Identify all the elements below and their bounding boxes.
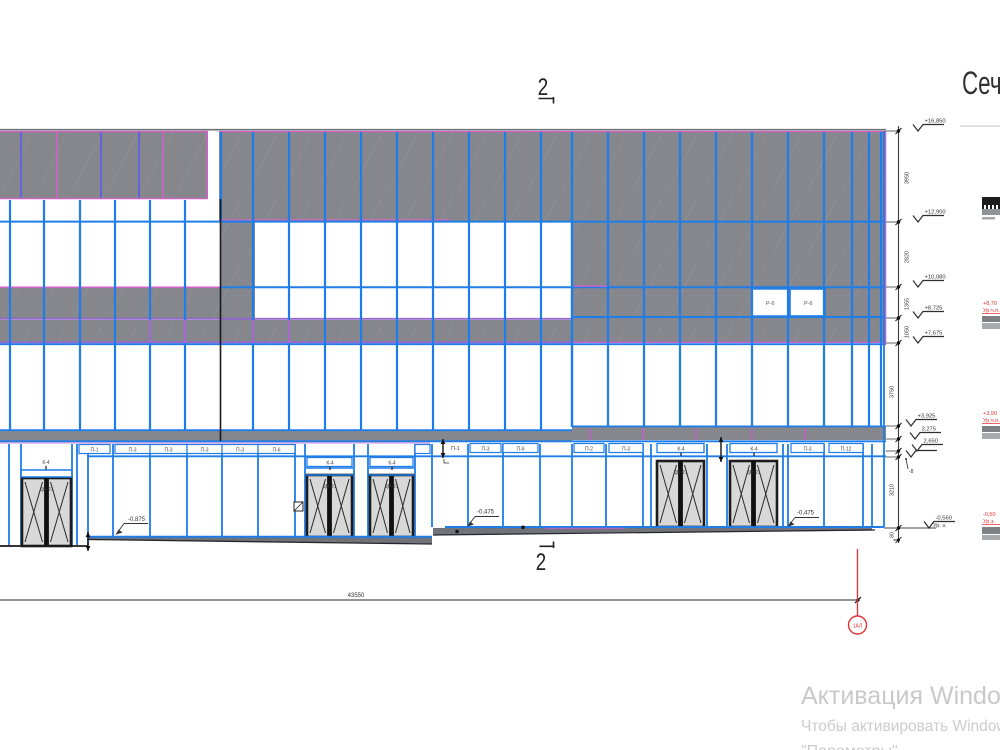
svg-text:ДН-21: ДН-21 (39, 487, 53, 493)
svg-text:П-6: П-6 (516, 447, 524, 453)
svg-text:ДН-21: ДН-21 (322, 484, 336, 490)
svg-text:П-6: П-6 (272, 448, 280, 454)
svg-text:-0,875: -0,875 (128, 517, 146, 523)
svg-text:-8: -8 (909, 469, 914, 475)
svg-text:+8,70: +8,70 (983, 301, 997, 307)
svg-text:Чтобы активировать Windows, пе: Чтобы активировать Windows, перейдите в (801, 718, 1000, 735)
svg-text:3210: 3210 (890, 484, 896, 496)
svg-text:К-4: К-4 (42, 460, 50, 466)
svg-text:+7,675: +7,675 (925, 331, 943, 337)
svg-text:ДН-21: ДН-21 (746, 470, 760, 476)
svg-text:П-1: П-1 (90, 448, 98, 454)
svg-text:"Параметры".: "Параметры". (801, 743, 902, 750)
svg-text:ДН-21: ДН-21 (384, 484, 398, 490)
svg-text:+8,725: +8,725 (925, 306, 943, 312)
svg-text:Сечение: Сечение (962, 65, 1000, 101)
svg-text:3750: 3750 (890, 386, 896, 398)
svg-text:К-4: К-4 (388, 461, 396, 467)
svg-text:-0,475: -0,475 (797, 511, 815, 517)
svg-text:2: 2 (536, 549, 546, 576)
svg-text:Р-6: Р-6 (766, 301, 775, 307)
svg-text:+16,850: +16,850 (925, 119, 946, 125)
svg-text:ДН-21: ДН-21 (673, 470, 687, 476)
svg-text:3,275: 3,275 (922, 427, 937, 433)
svg-text:+12,900: +12,900 (925, 210, 946, 216)
svg-text:Ур. з.: Ур. з. (933, 523, 947, 529)
svg-text:3950: 3950 (905, 172, 911, 184)
svg-text:П-2: П-2 (585, 447, 593, 453)
svg-text:-0,50: -0,50 (983, 512, 996, 518)
svg-text:2: 2 (538, 74, 548, 101)
svg-text:-0,475: -0,475 (477, 510, 495, 516)
svg-text:П-3: П-3 (803, 447, 811, 453)
svg-text:-0,560: -0,560 (936, 516, 952, 522)
svg-text:1355: 1355 (905, 298, 911, 310)
svg-text:80: 80 (890, 532, 896, 538)
svg-text:К-4: К-4 (677, 447, 685, 453)
svg-text:П-1: П-1 (451, 446, 460, 452)
svg-text:П-3: П-3 (236, 448, 244, 454)
svg-text:К-4: К-4 (750, 447, 758, 453)
svg-text:П-3: П-3 (128, 448, 136, 454)
svg-text:1050: 1050 (905, 326, 911, 338)
svg-text:П-12: П-12 (841, 447, 852, 453)
svg-text:К-4: К-4 (326, 461, 334, 467)
svg-text:П-3: П-3 (622, 447, 630, 453)
svg-text:Р-6: Р-6 (804, 301, 813, 307)
svg-text:+3,90: +3,90 (983, 411, 997, 417)
svg-text:П-3: П-3 (481, 447, 489, 453)
svg-text:Активация Windows: Активация Windows (801, 682, 1000, 710)
svg-text:П-3: П-3 (164, 448, 172, 454)
svg-text:+3,925: +3,925 (918, 414, 936, 420)
svg-text:1АЛ: 1АЛ (853, 624, 863, 630)
svg-text:2820: 2820 (905, 251, 911, 263)
svg-text:2,650: 2,650 (924, 439, 939, 445)
svg-text:П-3: П-3 (200, 448, 208, 454)
svg-text:+10,080: +10,080 (925, 275, 946, 281)
svg-text:43550: 43550 (348, 593, 365, 599)
